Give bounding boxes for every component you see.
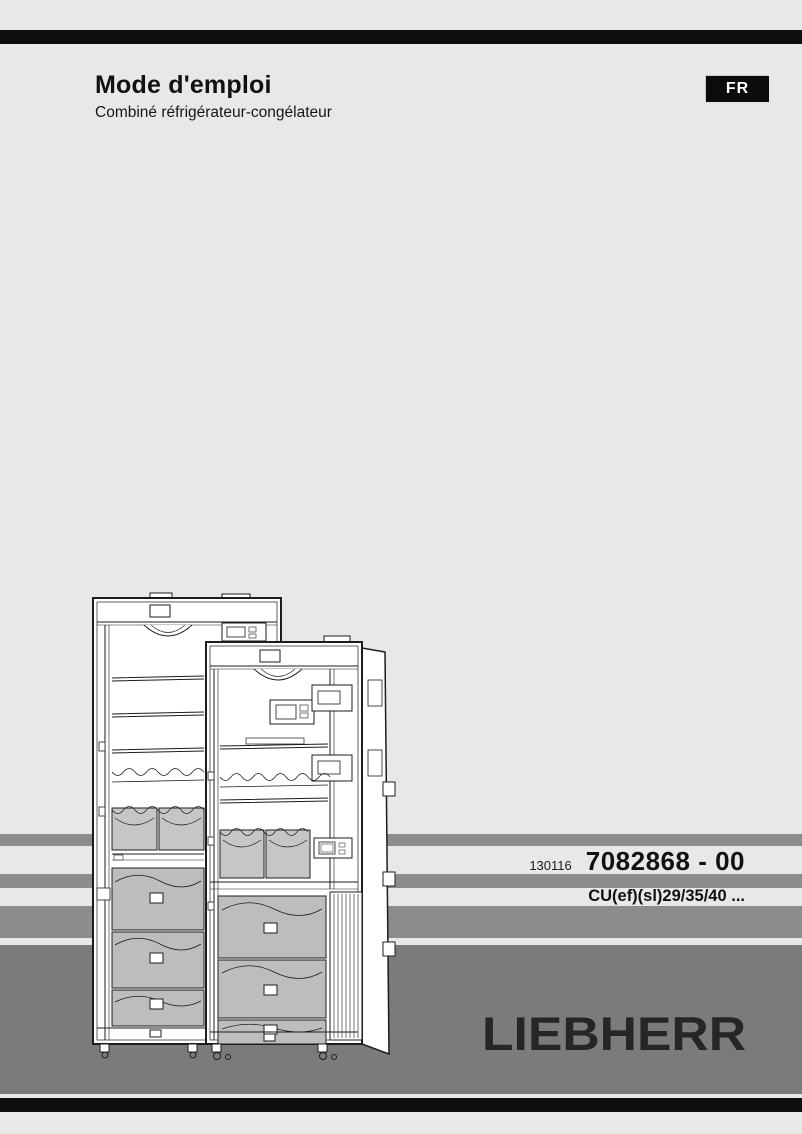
bottom-edge-bar	[0, 1098, 802, 1112]
language-badge: FR	[706, 76, 769, 102]
fridge-illustration	[88, 592, 398, 1064]
page-subtitle: Combiné réfrigérateur-congélateur	[95, 104, 332, 123]
part-number: 7082868 - 00	[586, 846, 745, 877]
liebherr-logo-text: LIEBHERR	[482, 1010, 746, 1056]
part-number-line: 130116 7082868 - 00	[360, 846, 745, 874]
page-title: Mode d'emploi	[95, 72, 272, 100]
date-code: 130116	[529, 858, 571, 873]
top-edge-bar	[0, 30, 802, 44]
liebherr-logo: LIEBHERR	[480, 1010, 750, 1056]
manual-cover-page: Mode d'emploi Combiné réfrigérateur-cong…	[0, 0, 802, 1134]
model-range: CU(ef)(sl)29/35/40 ...	[360, 887, 745, 906]
language-badge-label: FR	[726, 80, 749, 98]
